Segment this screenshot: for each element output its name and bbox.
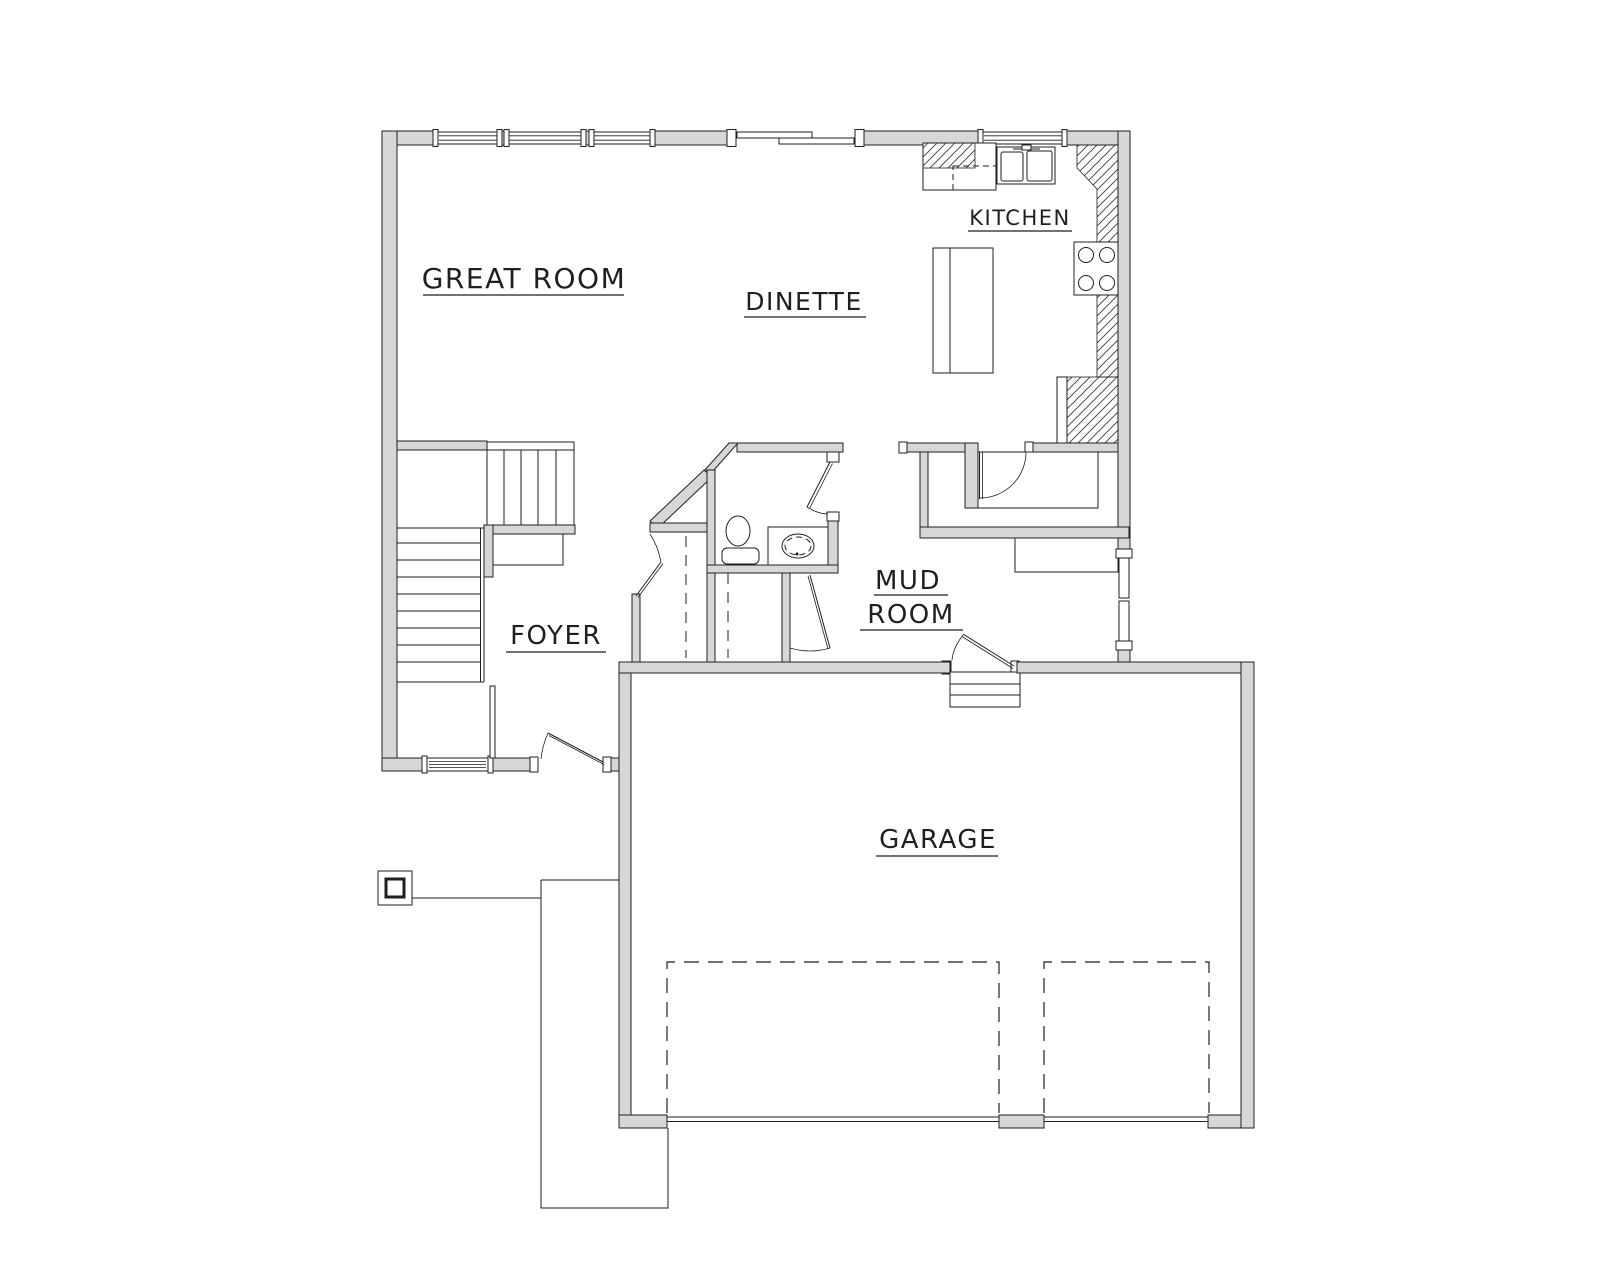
- closet-divider-wall: [920, 452, 928, 527]
- stair-landing-wall: [397, 441, 487, 450]
- left-wall: [382, 131, 397, 771]
- garage-right-wall: [1241, 662, 1254, 1128]
- door-jamb: [827, 512, 839, 521]
- powder-door-icon: [807, 462, 833, 514]
- closet-door-icon: [636, 534, 663, 598]
- vanity-sink-icon: [768, 527, 828, 565]
- window-icon: [433, 130, 502, 147]
- mud-room-label-line2: ROOM: [867, 600, 954, 630]
- window-icon: [504, 130, 586, 147]
- kitchen-label: KITCHEN: [969, 206, 1071, 230]
- garage-label: GARAGE: [879, 825, 997, 855]
- hall-door-icon: [790, 575, 830, 651]
- powder-bottom-wall: [707, 565, 838, 573]
- walkway-icon: [541, 898, 668, 1208]
- stair-upper-run: [487, 450, 574, 525]
- staircase-icon: [397, 441, 575, 758]
- refrigerator-icon: [923, 143, 996, 190]
- top-wall-segment: [654, 131, 727, 145]
- walk-in-closet-icon: [978, 452, 1098, 508]
- toilet-icon: [722, 516, 759, 564]
- garage-top-wall: [619, 662, 950, 673]
- angled-wall: [650, 470, 712, 528]
- sliding-patio-door-icon: [727, 130, 864, 147]
- stair-landing-below: [493, 534, 563, 565]
- garage-bottom-wall: [619, 1115, 667, 1128]
- closet-top-wall: [650, 523, 708, 532]
- stair-rail: [487, 442, 574, 450]
- right-wall-upper: [1118, 131, 1130, 549]
- bench-icon: [1015, 538, 1118, 572]
- garage-top-wall: [1017, 662, 1241, 673]
- great-room-label: GREAT ROOM: [422, 262, 627, 295]
- garage-bottom-wall: [1208, 1115, 1241, 1128]
- garage-structure: [619, 662, 1254, 1128]
- garage-entry-door-icon: [942, 634, 1019, 674]
- mud-room-label-line1: MUD: [875, 566, 941, 596]
- powder-top-wall: [737, 443, 843, 452]
- closet-divider-wall: [965, 443, 978, 508]
- closet-top-wall: [1025, 443, 1118, 452]
- foyer-label: FOYER: [510, 621, 602, 651]
- front-wall-segment: [382, 758, 422, 771]
- closet-wall: [782, 573, 790, 662]
- porch-column-icon: [378, 871, 412, 905]
- door-jamb: [1025, 442, 1033, 453]
- front-wall-segment: [611, 758, 619, 771]
- front-door-icon: [530, 733, 611, 772]
- stair-wall-stub: [484, 525, 493, 577]
- pantry-cabinet-icon: [1057, 377, 1118, 443]
- cooktop-4-burner-icon: [1074, 242, 1118, 295]
- angled-wall: [704, 443, 738, 471]
- wall-cap: [899, 442, 907, 453]
- dinette-label: DINETTE: [745, 287, 863, 316]
- stair-lower-run: [397, 528, 484, 682]
- door-jamb: [827, 452, 839, 462]
- mud-room-north-wall: [920, 527, 1129, 538]
- floor-plan: GREAT ROOM DINETTE KITCHEN FOYER MUD ROO…: [0, 0, 1600, 1280]
- powder-room: [650, 443, 843, 662]
- foyer-wall-stub: [490, 686, 495, 758]
- stair-wall: [487, 525, 575, 534]
- parking-stall-icon: [1044, 962, 1209, 1113]
- parking-stall-icon: [667, 962, 999, 1113]
- garage-left-wall: [619, 673, 631, 1115]
- island-icon: [933, 248, 993, 373]
- garage-door-post: [999, 1115, 1044, 1128]
- garage-door-sill-icon: [667, 1117, 1208, 1122]
- front-window-icon: [422, 756, 493, 773]
- floor-plan-sheet: GREAT ROOM DINETTE KITCHEN FOYER MUD ROO…: [0, 0, 1600, 1280]
- window-icon: [589, 130, 655, 147]
- garage-steps-icon: [950, 672, 1020, 707]
- front-wall-segment: [493, 758, 530, 771]
- kitchen-fixtures: [923, 143, 1118, 443]
- double-basin-sink-icon: [997, 145, 1055, 184]
- closet-wall: [632, 594, 640, 662]
